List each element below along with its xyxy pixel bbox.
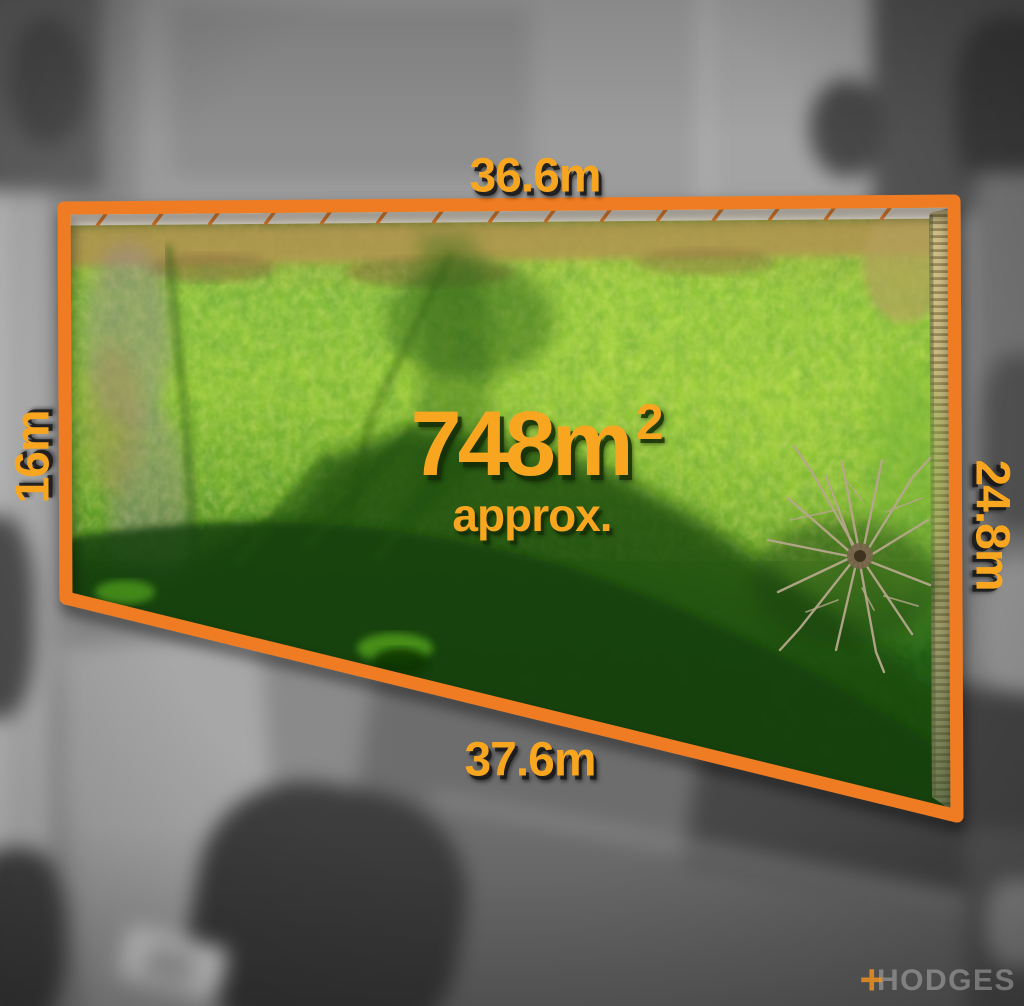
dry-patch xyxy=(145,254,275,282)
area-value: 748m xyxy=(410,393,629,495)
dimension-label-top: 36.6m xyxy=(469,149,600,204)
dry-patch xyxy=(635,249,775,275)
logo-plus-icon: + xyxy=(859,959,884,1001)
tree-ground-shadow xyxy=(753,520,937,644)
tree-trunk-core xyxy=(854,550,866,562)
agency-logo: + HODGES xyxy=(859,960,1016,1002)
logo-wordmark: HODGES xyxy=(877,964,1016,998)
aerial-photo-canvas: 36.6m 16m 24.8m 37.6m 748m2 approx. + HO… xyxy=(0,0,1024,1006)
weed-patch xyxy=(82,345,142,495)
dimension-label-right: 24.8m xyxy=(965,459,1020,590)
grass-tuft xyxy=(95,580,155,604)
area-qualifier: approx. xyxy=(400,492,663,538)
dimension-label-left: 16m xyxy=(6,410,61,503)
area-label: 748m2 approx. xyxy=(410,398,663,538)
dimension-label-bottom: 37.6m xyxy=(464,733,595,788)
canopy-shadow xyxy=(385,262,555,378)
area-exponent: 2 xyxy=(636,394,664,450)
